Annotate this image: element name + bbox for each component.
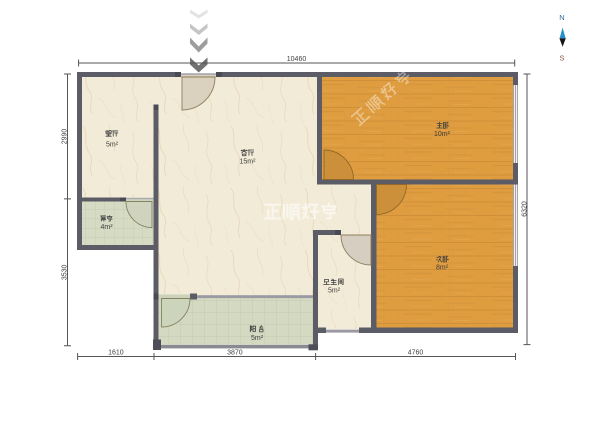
svg-text:15m²: 15m² (240, 159, 257, 166)
svg-text:5m²: 5m² (251, 335, 264, 342)
svg-text:1610: 1610 (108, 350, 124, 357)
svg-text:4m²: 4m² (100, 224, 113, 231)
svg-text:N: N (559, 13, 564, 22)
svg-text:4760: 4760 (408, 350, 424, 357)
svg-text:3870: 3870 (227, 350, 243, 357)
svg-text:6320: 6320 (521, 201, 528, 217)
svg-text:10m²: 10m² (434, 131, 451, 138)
svg-text:5m²: 5m² (328, 288, 341, 295)
svg-text:10460: 10460 (287, 56, 307, 63)
svg-text:2990: 2990 (61, 129, 68, 145)
svg-text:5m²: 5m² (106, 142, 119, 149)
svg-text:3530: 3530 (61, 265, 68, 281)
svg-text:8m²: 8m² (436, 265, 449, 272)
svg-text:S: S (559, 54, 564, 63)
